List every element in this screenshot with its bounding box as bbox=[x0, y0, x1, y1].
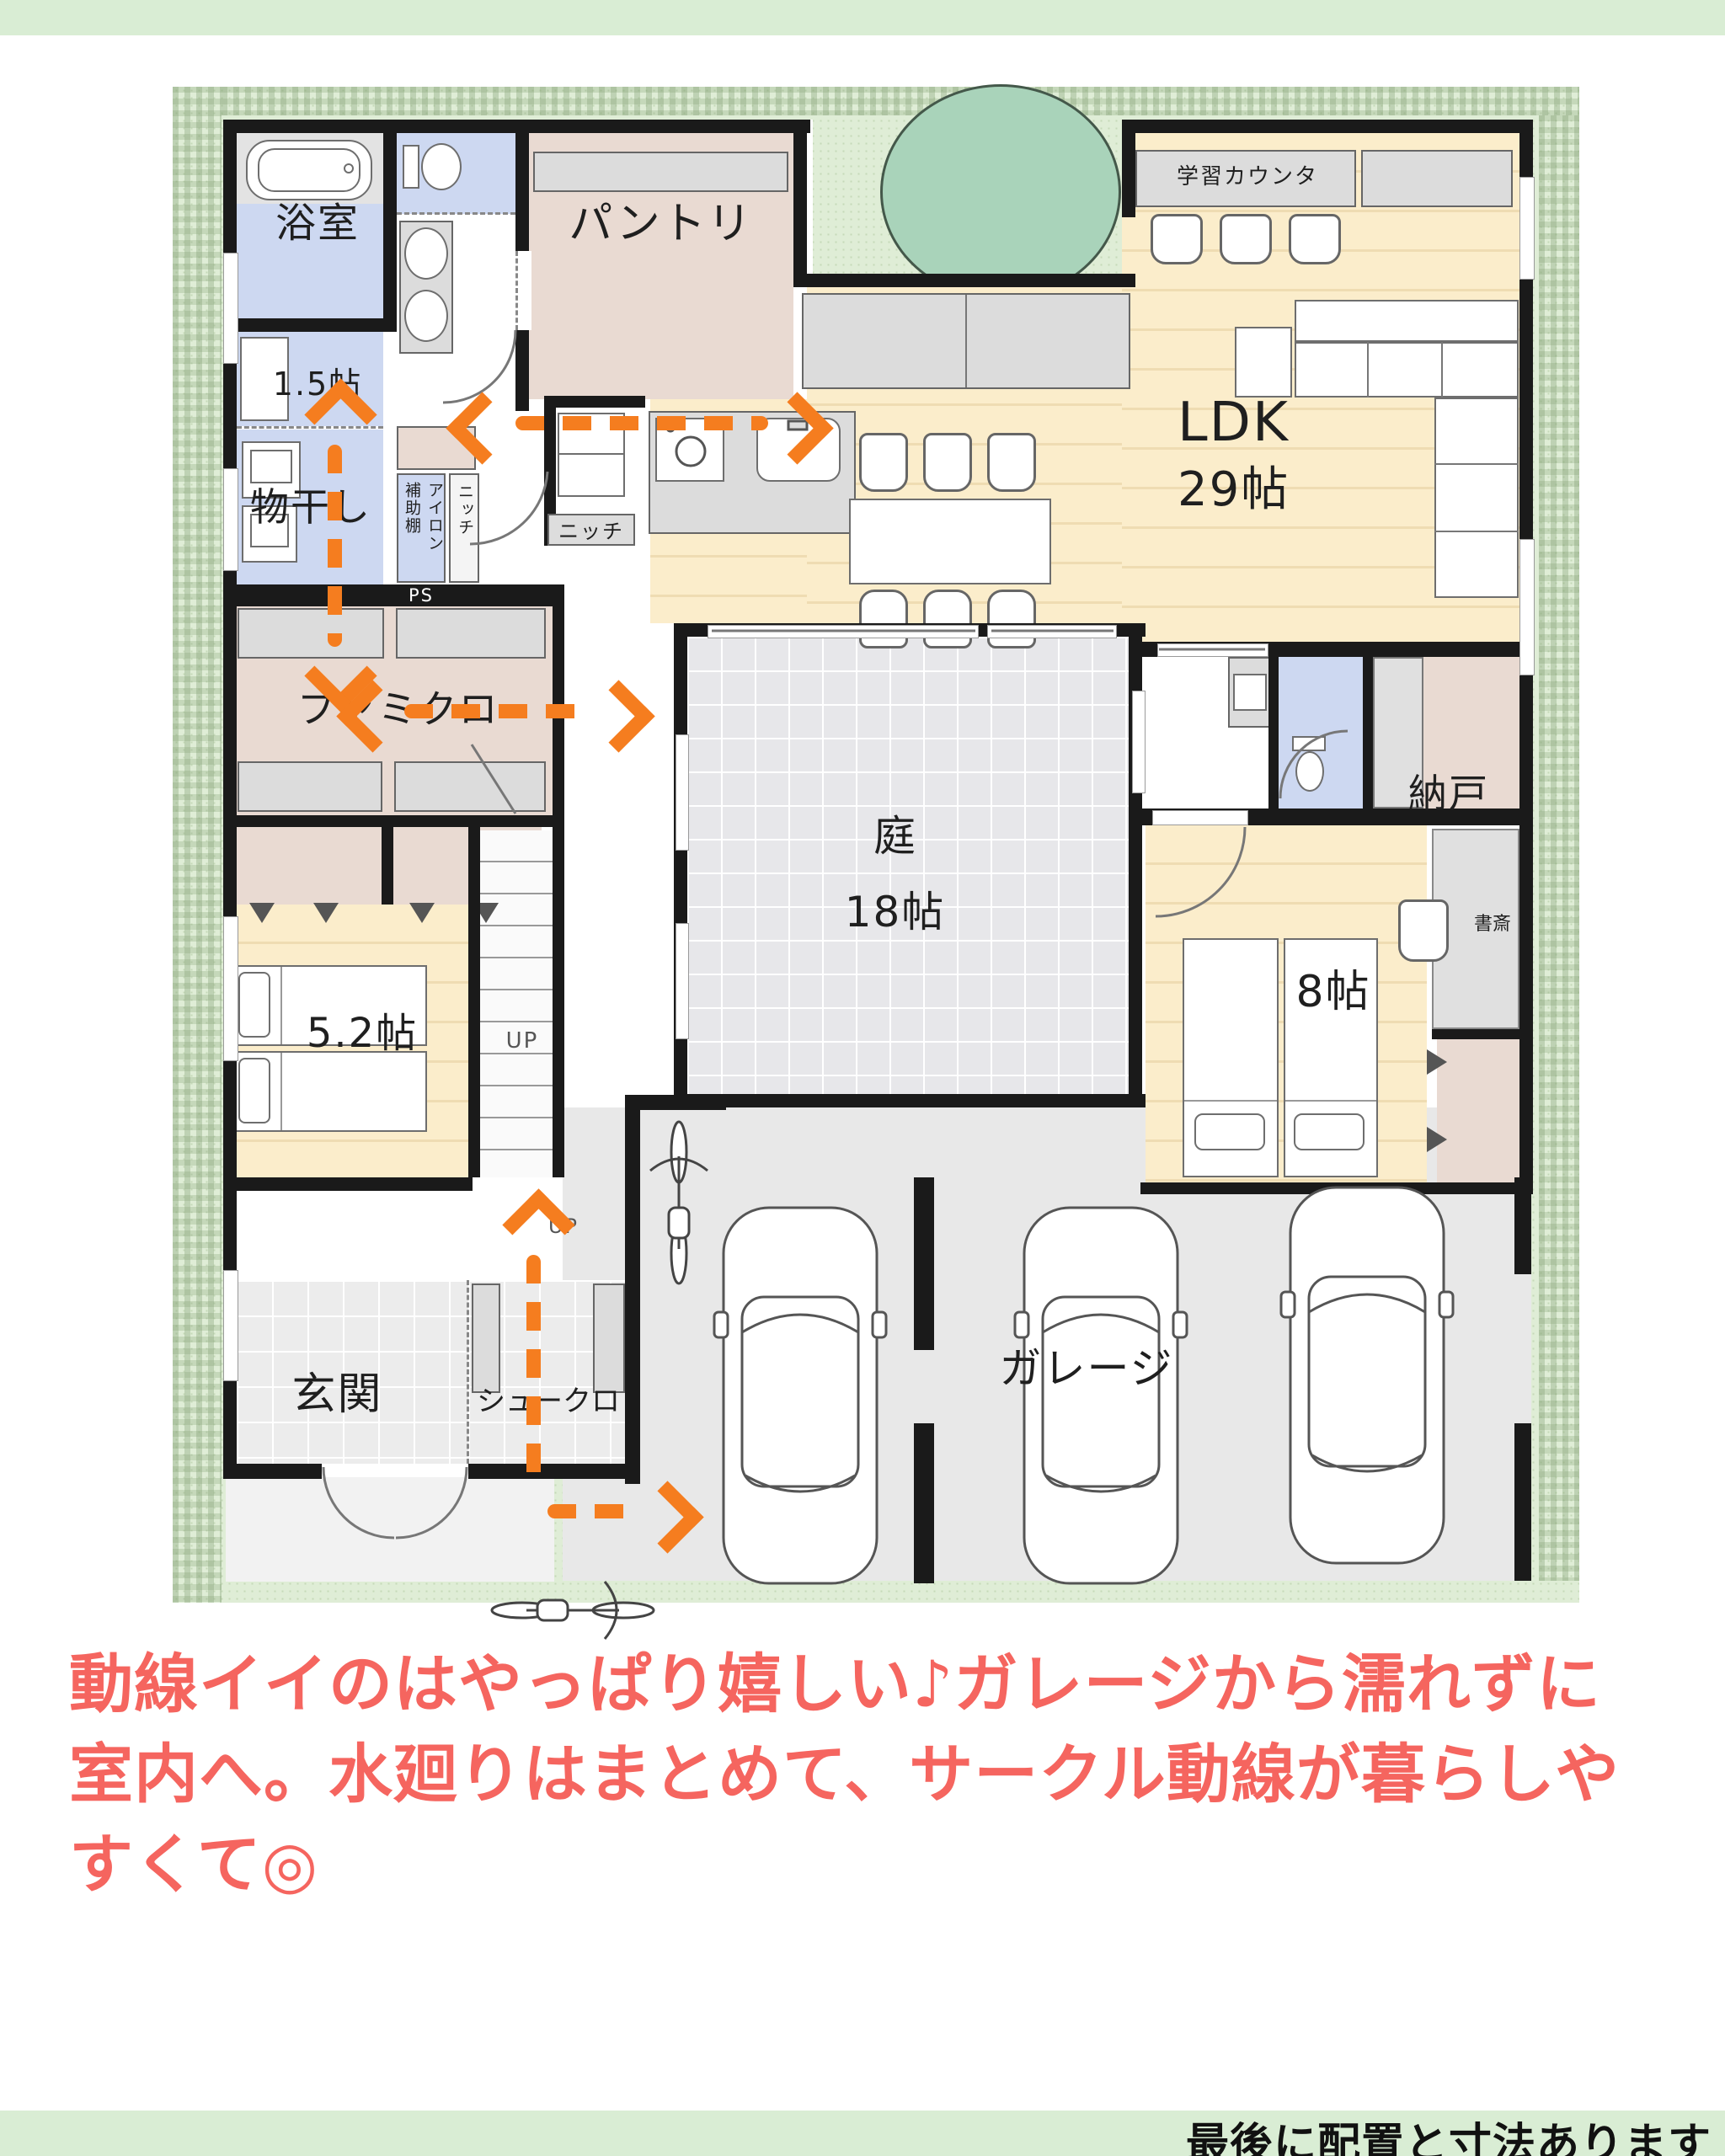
arrow-dash-vertical bbox=[526, 1255, 541, 1482]
counter-chair-2 bbox=[1220, 214, 1272, 264]
label-study-counter: 学習カウンタ bbox=[1142, 165, 1353, 189]
bed-line-2 bbox=[1285, 1100, 1376, 1102]
sofa-chaise bbox=[1434, 398, 1519, 598]
pillow-small-2 bbox=[238, 1058, 270, 1123]
dining-chair-3 bbox=[987, 433, 1036, 492]
wall-segment bbox=[223, 1464, 322, 1479]
label-garage: ガレージ bbox=[994, 1346, 1179, 1391]
window bbox=[1132, 691, 1146, 793]
window bbox=[708, 625, 979, 638]
wash-sink-1 bbox=[404, 227, 448, 280]
label-niche: ニッチ bbox=[454, 483, 477, 578]
label-ldk-size: 29帖 bbox=[1178, 465, 1371, 515]
wall-segment bbox=[383, 120, 397, 328]
wall-segment bbox=[625, 1095, 726, 1110]
wall-segment bbox=[468, 820, 480, 1177]
pillow-main-2 bbox=[1294, 1113, 1365, 1150]
arrow-dash-vertical bbox=[328, 445, 342, 647]
footer-note: 最後に配置と寸法あります bbox=[701, 2109, 1712, 2156]
window bbox=[1519, 539, 1535, 675]
wall-segment bbox=[1514, 1423, 1531, 1581]
label-courtyard: 庭 bbox=[849, 814, 942, 859]
label-ldk: LDK bbox=[1178, 394, 1371, 452]
washbasin-south-bowl bbox=[1233, 674, 1267, 711]
wall-segment bbox=[468, 1464, 637, 1479]
bathtub-drain bbox=[344, 163, 354, 173]
toilet-north-tank bbox=[403, 145, 419, 189]
sofa-ottoman bbox=[1235, 327, 1292, 398]
arrow-dash-horizontal bbox=[515, 416, 768, 430]
hanger-mark-1 bbox=[249, 903, 275, 923]
label-niche-kitchen: ニッチ bbox=[547, 514, 635, 546]
wc-north-sliding-door bbox=[397, 212, 515, 215]
hedge-left bbox=[173, 87, 222, 1603]
label-stairs-up: UP bbox=[495, 1029, 549, 1053]
arrow-dash-horizontal bbox=[404, 704, 590, 718]
toilet-south-bowl bbox=[1295, 751, 1324, 792]
dining-chair-5 bbox=[923, 590, 972, 648]
counter-chair-3 bbox=[1289, 214, 1341, 264]
sofa-line-2 bbox=[1441, 342, 1443, 398]
bed-line-4 bbox=[280, 1053, 282, 1130]
room-wc-south bbox=[1279, 657, 1363, 808]
study-counter-shelf bbox=[1361, 150, 1513, 207]
label-storage: 納戸 bbox=[1378, 773, 1519, 815]
sofa-back bbox=[1295, 300, 1519, 342]
window bbox=[676, 734, 689, 851]
hanger-mark-3 bbox=[409, 903, 435, 923]
sofa-line-3 bbox=[1434, 463, 1519, 465]
label-pantry: パントリ bbox=[528, 200, 793, 248]
bed-line-1 bbox=[1184, 1100, 1277, 1102]
label-ps: PS bbox=[396, 586, 446, 606]
bed-line-3 bbox=[280, 967, 282, 1044]
dining-chair-2 bbox=[923, 433, 972, 492]
bedroom-small-closet-1 bbox=[237, 825, 382, 905]
famiclo-shelf-3 bbox=[238, 761, 382, 812]
wall-segment bbox=[1122, 120, 1135, 217]
wash-sink-2 bbox=[404, 290, 448, 342]
wall-segment bbox=[223, 1177, 473, 1191]
dining-table bbox=[849, 499, 1051, 584]
pillow-main-1 bbox=[1194, 1113, 1265, 1150]
toilet-north-bowl bbox=[421, 143, 462, 190]
wall-segment bbox=[1140, 1182, 1533, 1194]
pantry-shelf bbox=[533, 152, 788, 192]
window bbox=[223, 1270, 238, 1381]
wall-segment bbox=[793, 120, 807, 287]
arrow-dash-horizontal bbox=[547, 1504, 640, 1518]
hedge-top bbox=[222, 87, 1579, 115]
wall-segment bbox=[223, 584, 553, 606]
wall-segment bbox=[544, 396, 645, 408]
pantry-door bbox=[515, 251, 531, 330]
dining-chair-1 bbox=[859, 433, 908, 492]
wall-segment bbox=[223, 318, 397, 332]
sofa-line-4 bbox=[1434, 531, 1519, 532]
stairs bbox=[480, 830, 553, 1177]
entrance-porch bbox=[226, 1477, 554, 1582]
wall-segment bbox=[1122, 120, 1533, 133]
wall-segment bbox=[914, 1423, 934, 1583]
wall-segment bbox=[1268, 657, 1279, 808]
wall-segment bbox=[625, 1107, 640, 1484]
wall-segment bbox=[914, 1177, 934, 1350]
window bbox=[676, 923, 689, 1039]
desk-chair bbox=[1398, 899, 1449, 962]
window bbox=[223, 253, 238, 364]
caption-line-3: すくて◎ bbox=[69, 1819, 1695, 1909]
shoe-cabinet-2 bbox=[593, 1283, 625, 1393]
window bbox=[1519, 177, 1535, 280]
wall-segment bbox=[553, 584, 564, 1177]
wall-segment bbox=[793, 274, 1135, 287]
floor-plan-page: 浴室 1.5帖 物干し 補助棚 アイロン ニッチ PS パントリ ニッチ 学習カ… bbox=[0, 0, 1725, 2156]
famiclo-shelf-4 bbox=[394, 761, 546, 812]
sofa-line-1 bbox=[1367, 342, 1369, 398]
counter-chair-1 bbox=[1151, 214, 1203, 264]
caption-line-2: 室内へ。水廻りはまとめて、サークル動線が暮らしや bbox=[69, 1729, 1695, 1819]
wall-segment bbox=[382, 825, 393, 905]
caption-text: 動線イイのはやっぱり嬉しい♪ガレージから濡れずに 室内へ。水廻りはまとめて、サー… bbox=[69, 1639, 1695, 1909]
label-bedroom-small: 5.2帖 bbox=[295, 1012, 430, 1056]
door-opening bbox=[1157, 643, 1268, 657]
label-laundry: 物干し bbox=[242, 487, 380, 529]
label-iron: アイロン bbox=[424, 482, 446, 579]
dining-chair-4 bbox=[859, 590, 908, 648]
window bbox=[223, 916, 238, 1061]
label-bathroom: 浴室 bbox=[267, 202, 368, 246]
window bbox=[987, 625, 1117, 638]
label-study: 書斎 bbox=[1466, 915, 1519, 935]
closet-door-mark-2 bbox=[1427, 1127, 1447, 1152]
wall-segment bbox=[1514, 1177, 1531, 1274]
window bbox=[223, 468, 238, 571]
courtyard-floor bbox=[687, 637, 1132, 1094]
hanger-mark-2 bbox=[313, 903, 339, 923]
wall-segment bbox=[1432, 1029, 1519, 1039]
dining-chair-6 bbox=[987, 590, 1036, 648]
tree-icon bbox=[880, 84, 1121, 300]
label-shoe-closet: シュークロ bbox=[470, 1386, 627, 1417]
bedroom-closet bbox=[1437, 1039, 1519, 1182]
wall-segment bbox=[1363, 657, 1373, 808]
washer-1-lid bbox=[250, 450, 292, 483]
famiclo-shelf-2 bbox=[396, 608, 546, 659]
tv-board-line bbox=[965, 295, 967, 387]
fridge-door-line bbox=[558, 453, 625, 455]
top-green-strip bbox=[0, 0, 1725, 35]
label-aux-shelf: 補助棚 bbox=[401, 482, 424, 579]
toilet-south-tank bbox=[1292, 736, 1326, 751]
label-genkan: 玄関 bbox=[276, 1371, 398, 1418]
label-courtyard-size: 18帖 bbox=[825, 889, 964, 935]
door-opening bbox=[1152, 810, 1248, 825]
sofa-seat bbox=[1295, 342, 1519, 398]
caption-line-1: 動線イイのはやっぱり嬉しい♪ガレージから濡れずに bbox=[69, 1639, 1695, 1729]
shoe-cabinet-1 bbox=[472, 1283, 500, 1393]
hedge-right bbox=[1539, 115, 1579, 1581]
pillow-small-1 bbox=[238, 972, 270, 1038]
closet-door-mark-1 bbox=[1427, 1049, 1447, 1075]
famiclo-shelf-1 bbox=[238, 608, 384, 659]
label-bedroom-main: 8帖 bbox=[1287, 969, 1380, 1016]
wall-segment bbox=[674, 1094, 1146, 1107]
shoe-closet-divider bbox=[467, 1280, 469, 1464]
